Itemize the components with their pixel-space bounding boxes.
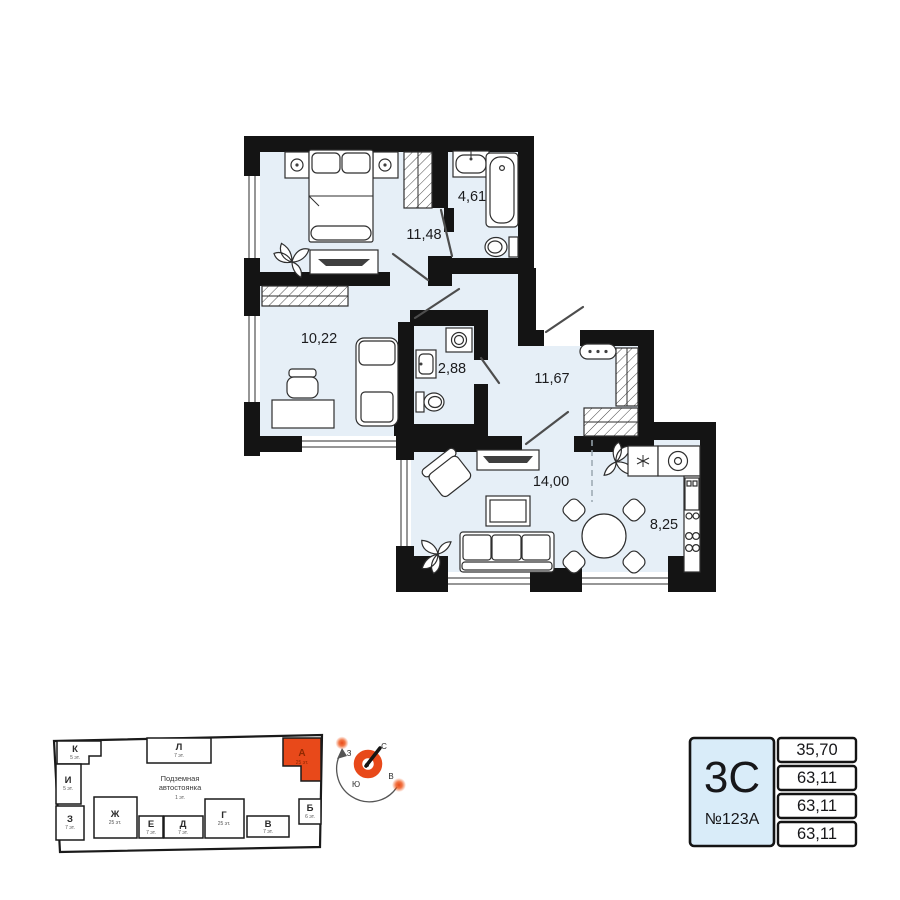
svg-text:7 эт.: 7 эт.	[146, 830, 156, 836]
toilet	[485, 237, 518, 257]
area-value: 35,70	[796, 741, 837, 759]
site-building-zh[interactable]: Ж 25 эт.	[94, 797, 137, 838]
svg-text:Д: Д	[180, 819, 187, 830]
window	[244, 316, 260, 402]
apartment-plan: 11,48 4,61 10,22 2,88 11,67 14,00 8,25	[244, 136, 716, 592]
compass-east-label: В	[388, 772, 393, 781]
site-building-z[interactable]: З 7 эт.	[56, 806, 84, 840]
area-value: 63,11	[797, 825, 837, 843]
toilet	[416, 392, 444, 412]
double-bed	[309, 150, 373, 242]
apartment-info-card: 3С №123А 35,70 63,11 63,11 63,11	[690, 738, 856, 846]
floor-plan-canvas: 11,48 4,61 10,22 2,88 11,67 14,00 8,25 К…	[0, 0, 900, 900]
svg-text:6 эт.: 6 эт.	[305, 814, 315, 820]
room-area-label: 8,25	[650, 517, 678, 533]
window	[244, 176, 260, 258]
svg-text:1 эт.: 1 эт.	[175, 795, 185, 801]
room-area-label: 14,00	[533, 474, 569, 490]
svg-text:7 эт.: 7 эт.	[263, 829, 273, 835]
coffee-table	[486, 496, 530, 526]
site-building-d[interactable]: Д 7 эт.	[164, 816, 203, 838]
window	[582, 572, 668, 592]
compass-north-label: С	[381, 742, 387, 751]
plan-type-label: 3С	[704, 753, 760, 802]
site-building-i[interactable]: И 5 эт.	[56, 764, 81, 804]
window	[448, 572, 530, 592]
area-value: 63,11	[797, 769, 837, 787]
hallway-furniture	[580, 344, 616, 359]
compass-icon: С З Ю В	[336, 737, 407, 802]
sun-icon	[392, 778, 406, 792]
fridge	[685, 478, 699, 510]
svg-text:25 эт.: 25 эт.	[296, 760, 309, 766]
compass-south-label: Ю	[352, 780, 360, 789]
svg-text:И: И	[65, 775, 72, 786]
room-area-label: 10,22	[301, 331, 337, 347]
entrance-door	[546, 307, 583, 332]
site-building-l[interactable]: Л 7 эт.	[147, 738, 211, 763]
room-area-label: 4,61	[458, 189, 486, 205]
sofa	[460, 532, 554, 572]
site-plan: К 5 эт. И 5 эт. З 7 эт. Ж 25 эт. Е 7 эт.…	[54, 735, 322, 852]
svg-text:7 эт.: 7 эт.	[174, 753, 184, 759]
site-building-v[interactable]: В 7 эт.	[247, 816, 289, 837]
svg-text:К: К	[72, 744, 78, 755]
room-area-label: 2,88	[438, 361, 466, 377]
site-building-g[interactable]: Г 25 эт.	[205, 799, 244, 838]
svg-text:Г: Г	[221, 810, 227, 821]
compass-west-label: З	[347, 749, 352, 758]
apartment-number-label: №123А	[705, 811, 760, 828]
svg-text:автостоянка: автостоянка	[159, 783, 202, 792]
bathtub	[486, 153, 518, 227]
svg-text:Подземная: Подземная	[161, 774, 200, 783]
svg-text:5 эт.: 5 эт.	[70, 755, 80, 761]
svg-text:25 эт.: 25 эт.	[218, 821, 231, 827]
shoe-bench	[580, 344, 616, 359]
sink	[453, 151, 489, 177]
svg-text:Л: Л	[176, 742, 183, 753]
site-building-b[interactable]: Б 6 эт.	[299, 799, 321, 824]
site-building-e[interactable]: Е 7 эт.	[139, 816, 163, 838]
arrowhead-icon	[337, 748, 347, 759]
svg-text:А: А	[298, 748, 305, 759]
dining-table	[582, 514, 626, 558]
sun-icon	[336, 737, 349, 750]
window	[397, 460, 411, 546]
svg-text:Е: Е	[148, 819, 154, 830]
area-value: 63,11	[797, 797, 837, 815]
desk	[272, 400, 334, 428]
sink	[416, 350, 436, 378]
tv-stand	[477, 450, 539, 470]
svg-text:7 эт.: 7 эт.	[65, 825, 75, 831]
floor-plan-page: 11,48 4,61 10,22 2,88 11,67 14,00 8,25 К…	[0, 0, 900, 900]
svg-text:З: З	[67, 814, 73, 825]
svg-text:Б: Б	[307, 803, 314, 814]
svg-text:7 эт.: 7 эт.	[178, 830, 188, 836]
svg-text:Ж: Ж	[110, 809, 120, 820]
window	[302, 436, 396, 452]
svg-text:25 эт.: 25 эт.	[109, 820, 122, 826]
washing-machine	[446, 328, 472, 352]
room-area-label: 11,48	[406, 227, 441, 243]
dresser-tv	[310, 250, 378, 274]
daybed	[356, 338, 398, 426]
room-area-label: 11,67	[534, 371, 569, 387]
svg-text:5 эт.: 5 эт.	[63, 786, 73, 792]
